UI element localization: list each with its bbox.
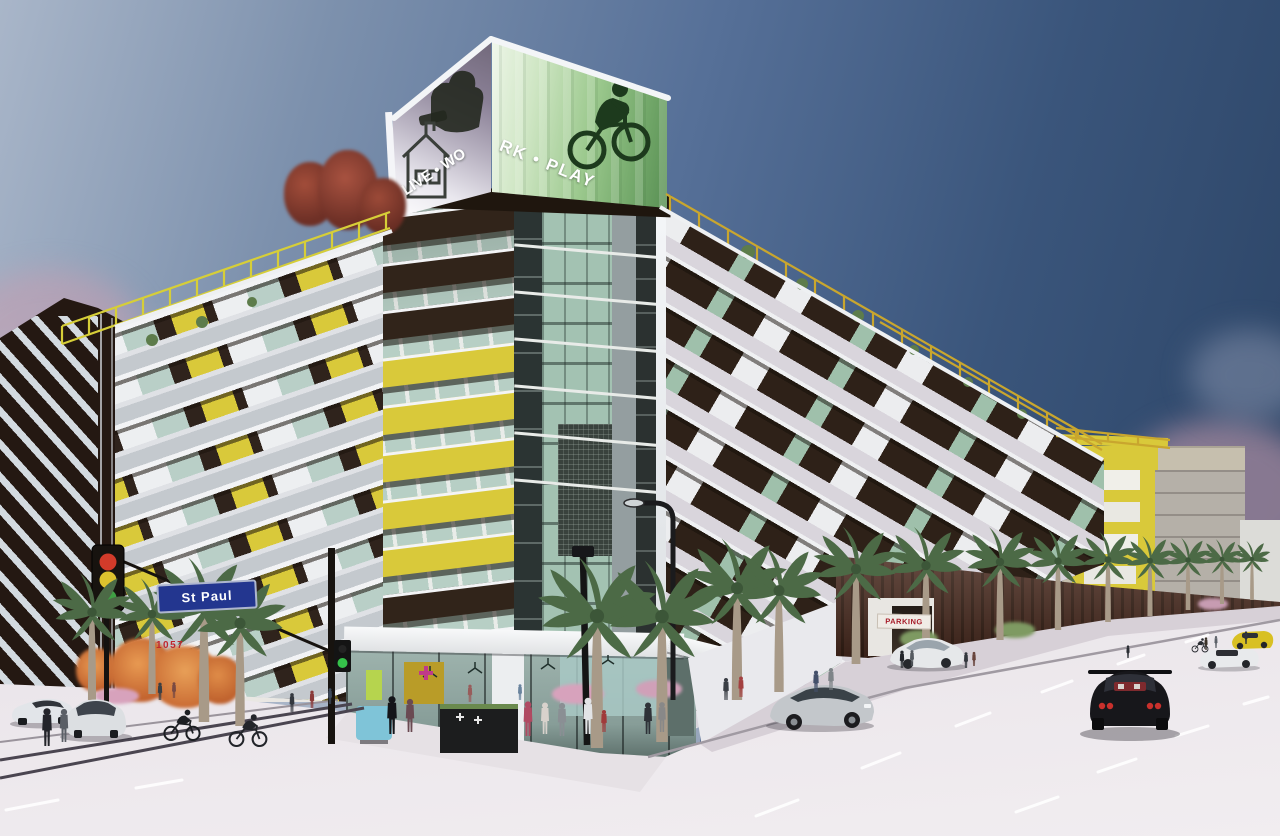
person bbox=[406, 699, 414, 732]
person bbox=[310, 691, 314, 708]
person bbox=[524, 701, 533, 736]
person bbox=[518, 684, 522, 700]
person bbox=[723, 678, 729, 700]
person bbox=[972, 652, 976, 666]
palm-tree bbox=[1234, 541, 1271, 600]
person bbox=[158, 683, 162, 700]
signal-pole bbox=[328, 548, 335, 744]
parapet-edges bbox=[115, 207, 1103, 460]
palm-tree bbox=[1080, 532, 1136, 622]
car-silver-sedan bbox=[766, 685, 874, 732]
palm-tree bbox=[965, 527, 1035, 640]
palm-tree bbox=[887, 527, 964, 652]
red-light bbox=[100, 554, 117, 571]
person bbox=[172, 682, 176, 698]
rooftop-trellis bbox=[62, 212, 390, 344]
car-white-hatchback bbox=[60, 700, 132, 743]
palm-tree bbox=[814, 527, 899, 664]
palm-tree bbox=[1166, 538, 1211, 610]
address-number: 1057 bbox=[156, 640, 184, 651]
planter-decals bbox=[456, 713, 482, 724]
lane-dashes bbox=[6, 635, 1268, 816]
person bbox=[1214, 636, 1217, 648]
street-name-sign: St Paul bbox=[156, 579, 257, 613]
cyclist bbox=[164, 710, 199, 740]
palm-tree bbox=[1125, 536, 1174, 616]
cyclists bbox=[164, 638, 1208, 746]
scene-detail-overlay bbox=[0, 0, 1280, 836]
person bbox=[468, 685, 472, 702]
billboard-top-edge bbox=[394, 39, 668, 118]
architectural-rendering: LIVE • WO RK • PLAY bbox=[0, 0, 1280, 836]
pharmacy-cross bbox=[419, 666, 433, 680]
person bbox=[387, 696, 397, 734]
car-yellow bbox=[1232, 631, 1273, 649]
person bbox=[558, 703, 566, 736]
palm-tree bbox=[1202, 539, 1242, 604]
person bbox=[541, 703, 549, 735]
parking-sign: PARKING bbox=[877, 614, 931, 630]
person bbox=[290, 693, 295, 712]
palm-tree bbox=[1027, 530, 1088, 630]
rooftop-trellis bbox=[666, 194, 1170, 460]
car-white-sedan bbox=[887, 638, 967, 672]
car-black-sports bbox=[1080, 670, 1180, 741]
pedestrian-signal bbox=[334, 640, 351, 672]
person bbox=[644, 703, 652, 735]
